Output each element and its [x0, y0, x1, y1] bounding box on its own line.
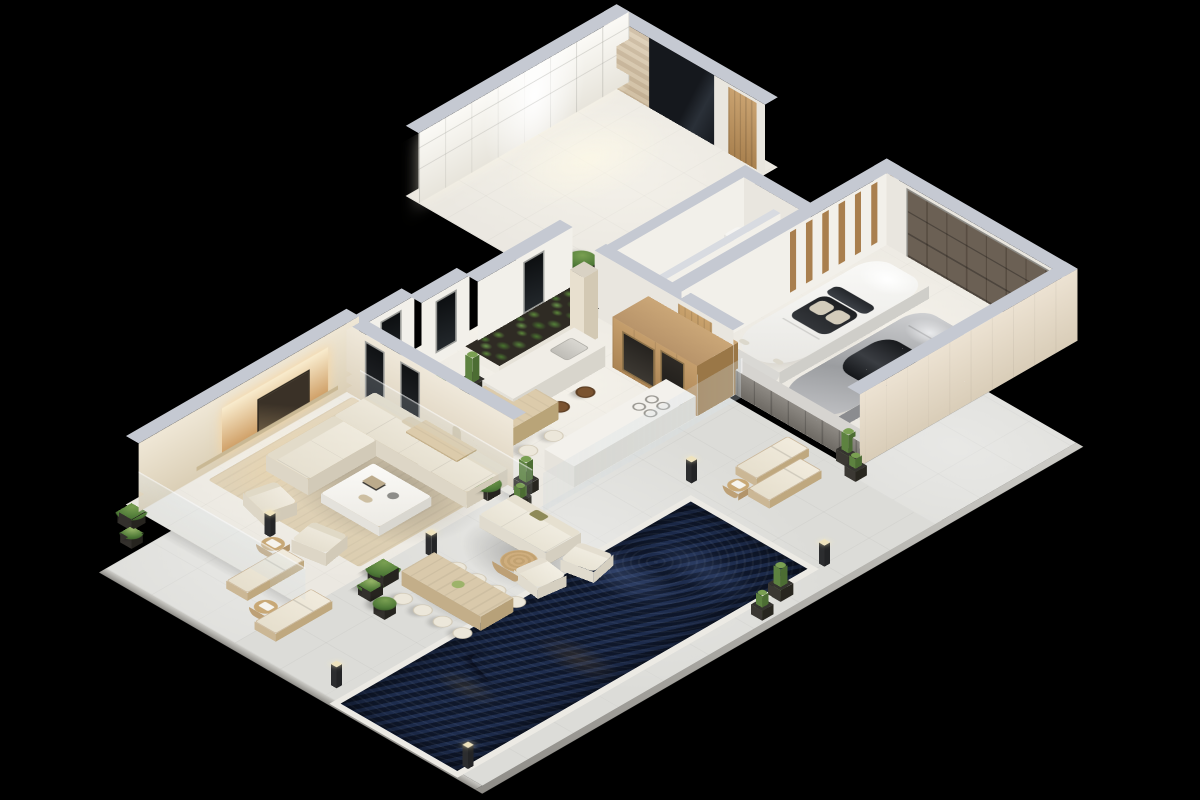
table-books [362, 475, 386, 489]
render-stage [0, 0, 1200, 800]
planter-top [117, 503, 145, 519]
planter-top [368, 559, 399, 577]
bollard-side [824, 542, 830, 566]
planter-top [373, 597, 396, 610]
table-bowl [385, 491, 402, 501]
slot-window [436, 289, 457, 354]
bollard-side [692, 459, 698, 483]
table-centerpiece [449, 579, 467, 590]
lounger-fold [293, 599, 314, 611]
lounger-fold [771, 446, 792, 458]
planter-top [358, 577, 383, 592]
shrub-planter [120, 536, 143, 549]
bollard-side [337, 664, 343, 688]
bollard-side [468, 745, 474, 769]
bollard-side [270, 513, 276, 537]
table-decor [356, 493, 374, 504]
lounger-fold [783, 468, 804, 480]
towel [730, 480, 746, 489]
planter-top [120, 526, 143, 539]
